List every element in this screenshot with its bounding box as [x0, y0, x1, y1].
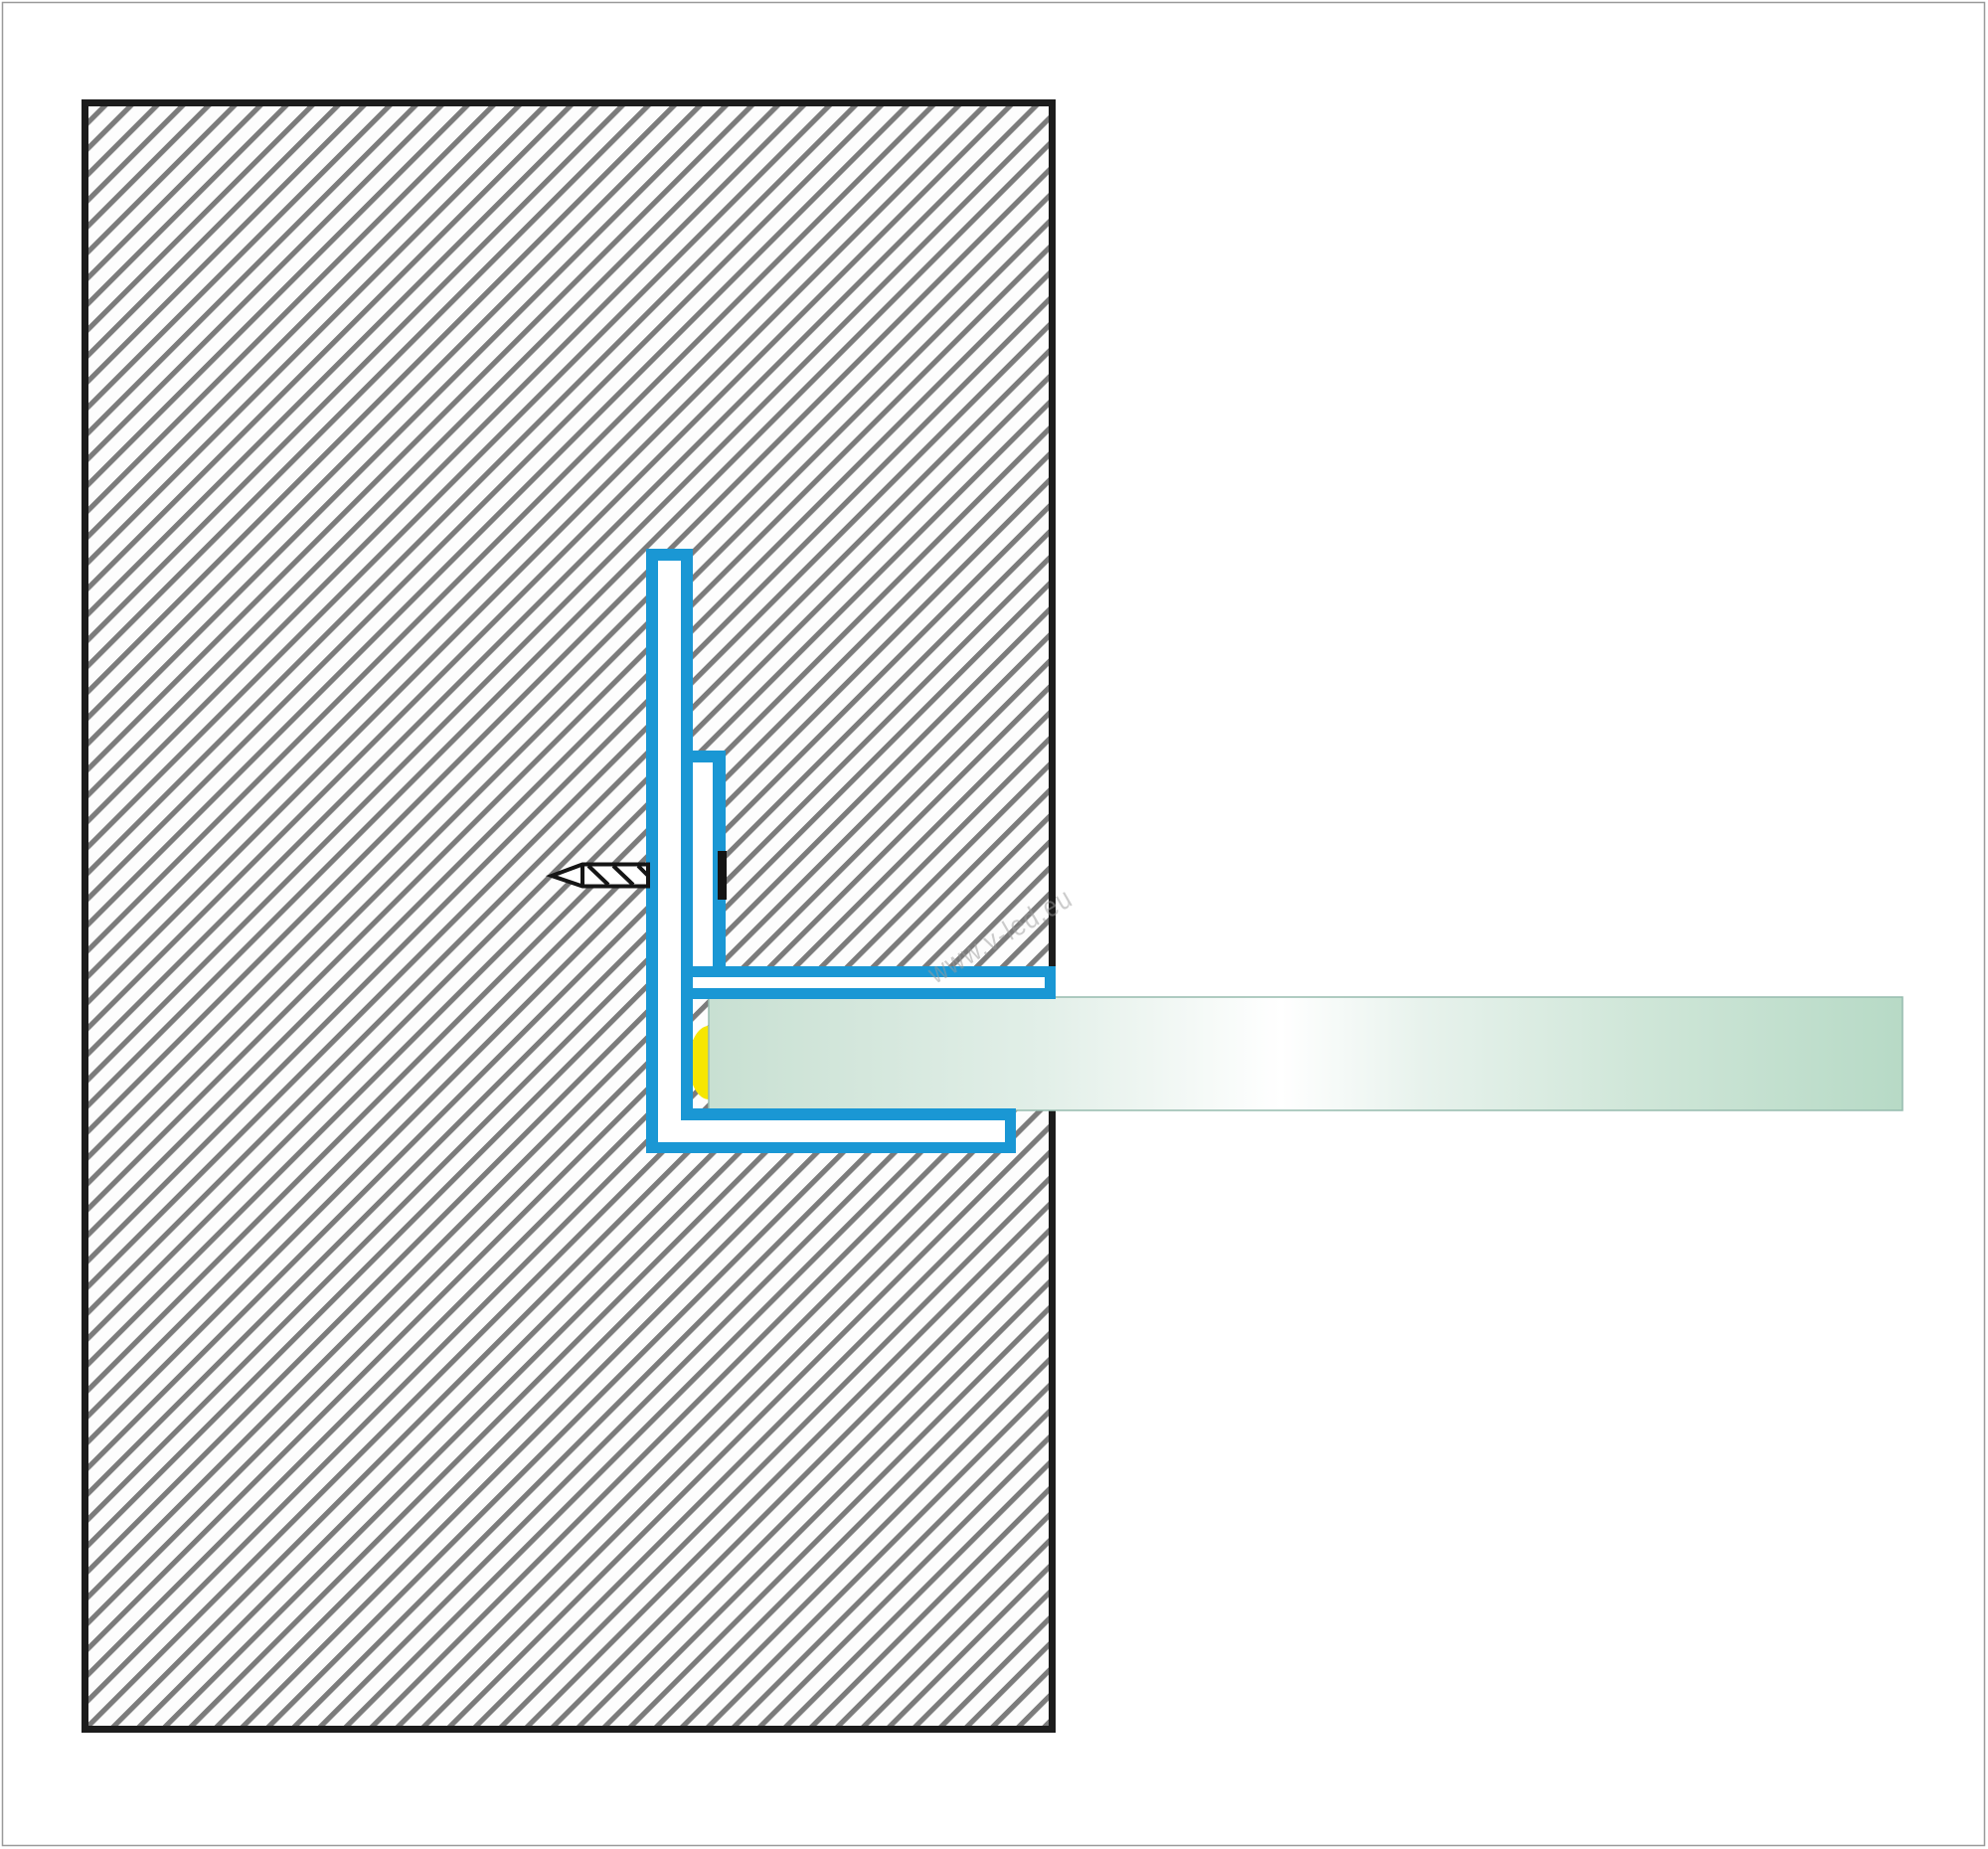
glass-panel: [709, 997, 1903, 1110]
clamp-profile-leg-body: [693, 762, 713, 966]
wall-hatch: [82, 99, 1056, 1733]
diagram-page: www.v-led.eu: [0, 0, 1988, 1849]
screw-head: [718, 851, 727, 900]
clamp-profile-arm-body: [693, 977, 1045, 988]
wall-section: [82, 99, 1056, 1733]
profile-cross-section-diagram: www.v-led.eu: [0, 0, 1988, 1849]
